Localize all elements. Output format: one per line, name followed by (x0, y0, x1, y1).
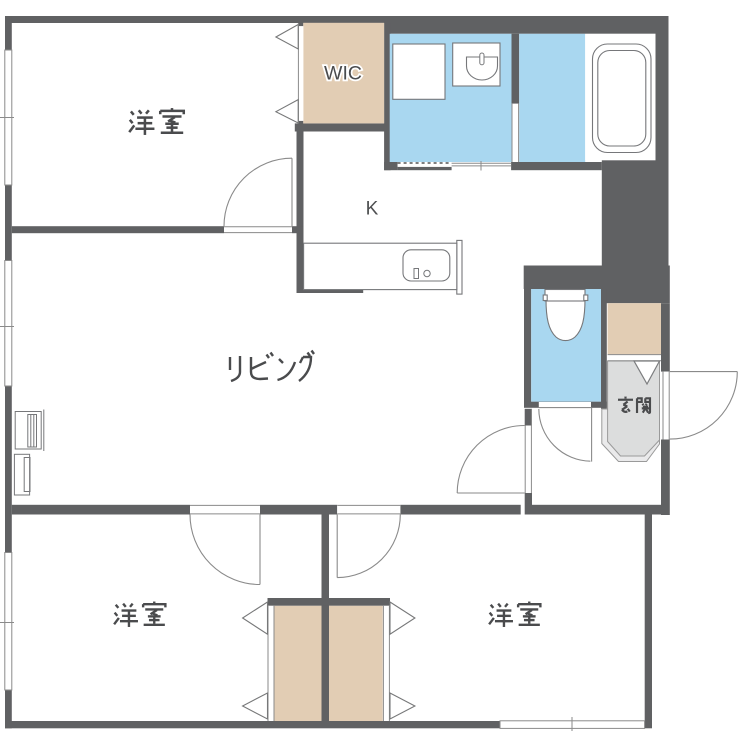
svg-text:K: K (366, 199, 379, 220)
svg-text:WIC: WIC (324, 63, 362, 85)
